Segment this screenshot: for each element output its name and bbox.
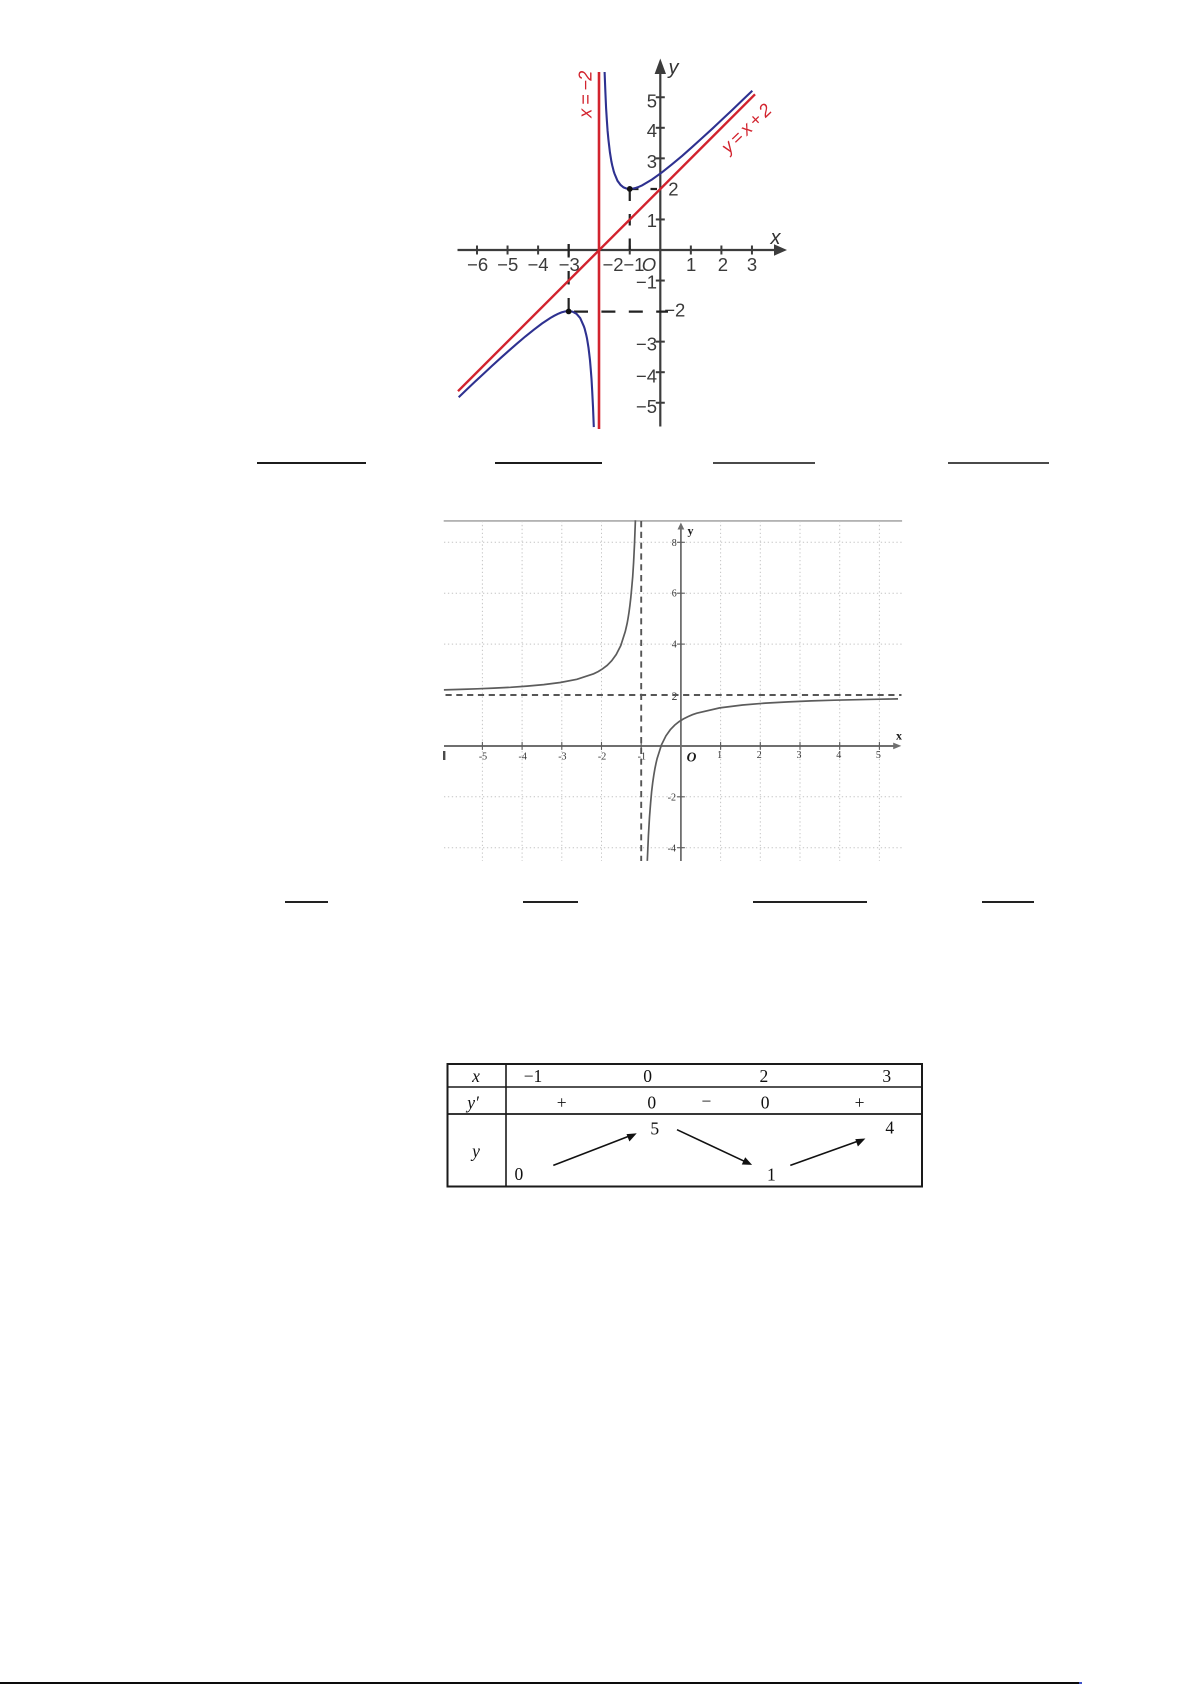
svg-text:3: 3 — [797, 750, 802, 761]
svg-text:x: x — [770, 227, 782, 249]
svg-text:x: x — [896, 729, 902, 743]
svg-text:y = x + 2: y = x + 2 — [716, 100, 776, 159]
svg-text:x = −2: x = −2 — [575, 71, 595, 119]
svg-text:1: 1 — [647, 210, 657, 231]
svg-text:0: 0 — [515, 1164, 524, 1184]
svg-text:2: 2 — [672, 691, 678, 703]
svg-text:8: 8 — [672, 538, 677, 549]
svg-text:2: 2 — [760, 1066, 769, 1086]
svg-text:−4: −4 — [527, 254, 548, 275]
svg-text:−: − — [701, 1091, 711, 1111]
svg-text:−2: −2 — [602, 254, 623, 275]
svg-text:−4: −4 — [636, 366, 657, 387]
svg-text:4: 4 — [647, 120, 657, 141]
svg-text:-4: -4 — [519, 752, 527, 763]
svg-text:3: 3 — [747, 254, 757, 275]
svg-text:−2: −2 — [664, 300, 685, 321]
svg-text:0: 0 — [643, 1066, 652, 1086]
svg-text:+: + — [855, 1093, 865, 1113]
svg-text:5: 5 — [647, 90, 657, 111]
svg-text:2: 2 — [718, 254, 728, 275]
svg-text:5: 5 — [876, 750, 881, 761]
svg-text:1: 1 — [686, 254, 696, 275]
svg-text:O: O — [687, 749, 697, 764]
svg-text:y: y — [470, 1141, 480, 1161]
svg-text:3: 3 — [647, 151, 657, 172]
svg-text:y: y — [667, 57, 680, 79]
svg-text:-2: -2 — [598, 752, 606, 763]
svg-text:0: 0 — [647, 1093, 656, 1113]
svg-text:-4: -4 — [668, 843, 676, 854]
svg-text:+: + — [557, 1093, 567, 1113]
svg-text:−6: −6 — [467, 254, 488, 275]
svg-text:2: 2 — [757, 750, 762, 761]
svg-text:y′: y′ — [465, 1093, 480, 1113]
svg-text:−5: −5 — [636, 396, 657, 417]
svg-text:−5: −5 — [497, 254, 518, 275]
svg-text:1: 1 — [767, 1165, 776, 1185]
svg-text:-2: -2 — [668, 792, 676, 803]
svg-text:6: 6 — [672, 588, 677, 599]
svg-text:-5: -5 — [479, 752, 487, 763]
svg-text:y: y — [688, 524, 694, 538]
svg-text:x: x — [471, 1066, 480, 1086]
svg-text:5: 5 — [650, 1119, 659, 1139]
svg-text:−3: −3 — [636, 334, 657, 355]
svg-text:−1: −1 — [524, 1066, 543, 1086]
svg-text:2: 2 — [668, 179, 678, 200]
svg-text:3: 3 — [882, 1066, 891, 1086]
svg-text:4: 4 — [672, 639, 677, 650]
svg-text:4: 4 — [836, 750, 841, 761]
svg-text:−1: −1 — [636, 272, 657, 293]
svg-text:0: 0 — [761, 1093, 770, 1113]
svg-text:1: 1 — [717, 750, 722, 761]
svg-text:4: 4 — [885, 1118, 894, 1138]
svg-text:-3: -3 — [558, 752, 566, 763]
